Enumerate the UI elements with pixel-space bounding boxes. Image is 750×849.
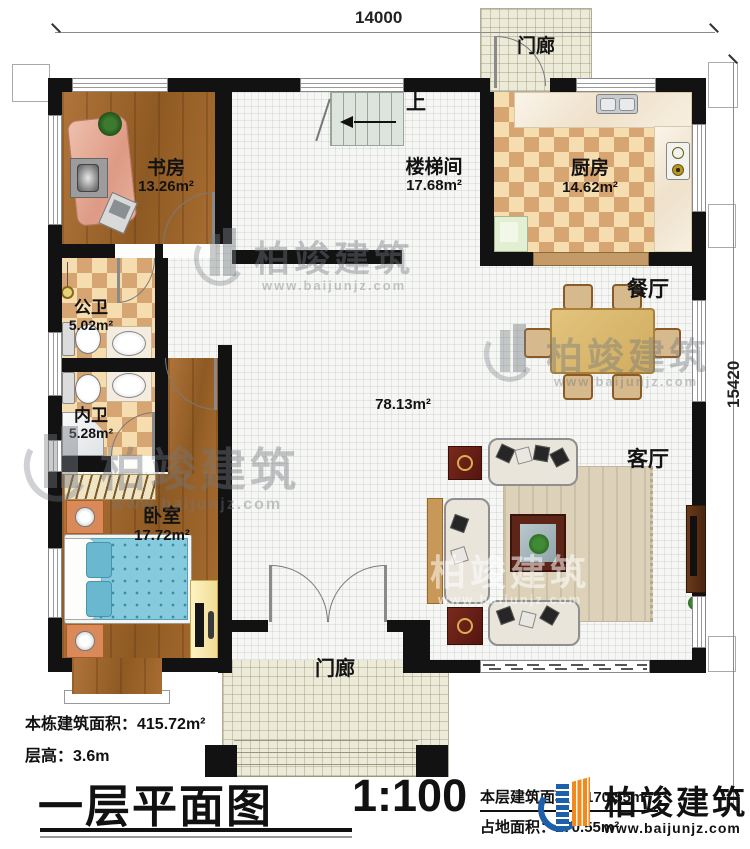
sliding-door — [480, 660, 650, 673]
brand-name: 柏竣建筑 — [604, 776, 748, 824]
window — [576, 78, 656, 92]
window — [48, 115, 62, 225]
private-bath-toilet — [75, 374, 101, 404]
room-area-kitchen: 14.62m² — [540, 179, 640, 196]
private-bath-toilet-tank — [62, 372, 75, 404]
room-label-dining: 餐厅 — [608, 278, 688, 302]
room-label-stairwell: 楼梯间 — [382, 157, 486, 179]
window — [692, 124, 706, 212]
exterior-pier — [12, 64, 50, 102]
floor-height: 层高：3.6m — [25, 742, 109, 766]
wall-segment — [480, 252, 533, 266]
wall-segment — [232, 250, 402, 264]
window — [72, 78, 168, 92]
exterior-pier — [708, 204, 736, 248]
wall-segment — [692, 212, 706, 300]
wall-segment — [692, 78, 706, 124]
door-leaf — [152, 412, 155, 456]
window — [692, 596, 706, 648]
floor-plan: 14000 15420 — [0, 0, 750, 849]
room-label-private-bath: 内卫 — [46, 406, 136, 426]
dimension-line-top — [55, 32, 715, 33]
dimension-line-right — [733, 62, 734, 810]
window — [48, 332, 62, 396]
plan-title: 一层平面图 — [38, 770, 273, 835]
door-leaf — [212, 192, 215, 244]
room-label-bedroom: 卧室 — [112, 506, 212, 528]
stair-direction-arrow — [354, 121, 396, 123]
side-table — [448, 446, 482, 480]
bedroom-tv-cabinet — [190, 580, 218, 668]
wall-segment — [168, 78, 300, 92]
room-label-public-bath: 公卫 — [46, 298, 136, 318]
total-building-area: 本栋建筑面积：415.72m² — [25, 710, 206, 734]
room-area-bedroom: 17.72m² — [112, 527, 212, 544]
dining-chair — [563, 284, 593, 310]
room-area-public-bath: 5.02m² — [46, 317, 136, 333]
dining-chair — [653, 328, 681, 358]
room-label-kitchen: 厨房 — [540, 158, 640, 180]
window — [48, 548, 62, 618]
dining-table — [550, 308, 655, 374]
kitchen-sink — [596, 94, 638, 114]
door-opening — [111, 456, 155, 472]
dimension-height: 15420 — [724, 344, 744, 408]
bed-pillow — [86, 581, 112, 617]
wall-segment — [232, 620, 268, 632]
window — [692, 300, 706, 402]
title-underline-thin — [40, 836, 352, 838]
private-bath-vanity — [106, 368, 152, 402]
bedroom-bay-floor — [72, 658, 162, 694]
study-chair — [70, 158, 108, 198]
exterior-pier — [708, 636, 736, 672]
study-plant — [98, 112, 122, 136]
kitchen-fridge — [494, 216, 528, 252]
room-area-private-bath: 5.28m² — [46, 425, 136, 441]
wall-segment — [48, 78, 62, 115]
room-label-porch-bottom: 门廊 — [260, 658, 410, 681]
dimension-width: 14000 — [355, 8, 402, 28]
sofa-pillow — [533, 445, 550, 462]
dining-chair — [563, 374, 593, 400]
plan-scale: 1:100 — [352, 770, 467, 822]
hall-area-label: 78.13m² — [348, 396, 458, 413]
room-label-porch-top: 门廊 — [480, 36, 592, 58]
brand-url: www.baijunjz.com — [604, 820, 741, 836]
room-area-stairwell: 17.68m² — [382, 177, 486, 194]
living-console — [427, 498, 443, 604]
dining-chair — [612, 374, 642, 400]
wall-segment — [387, 620, 403, 632]
wall-segment — [48, 472, 62, 548]
wall-segment — [48, 358, 155, 372]
stairs-up-label: 上 — [402, 92, 430, 115]
wall-segment — [218, 345, 232, 673]
coffee-table — [510, 514, 566, 572]
room-area-study: 13.26m² — [116, 178, 216, 195]
window — [48, 440, 62, 472]
window — [300, 78, 404, 92]
room-label-study: 书房 — [116, 158, 216, 180]
door-opening — [115, 244, 155, 258]
wall-segment — [550, 78, 576, 92]
nightstand — [66, 500, 104, 534]
stair-arrow-head — [340, 116, 353, 128]
dining-chair — [524, 328, 552, 358]
bed-pillow — [86, 542, 112, 578]
living-tv-cabinet — [686, 505, 706, 593]
title-underline — [40, 828, 352, 832]
wall-segment — [215, 92, 232, 244]
door-leaf — [117, 258, 120, 303]
door-opening — [163, 244, 215, 258]
kitchen-entry-threshold — [533, 252, 649, 266]
kitchen-stove — [666, 142, 690, 180]
side-table — [447, 607, 483, 645]
bath-lamp-cord — [67, 262, 68, 288]
door-leaf — [214, 358, 217, 410]
room-label-living: 客厅 — [608, 448, 688, 472]
nightstand — [66, 624, 104, 658]
wall-segment — [649, 252, 692, 266]
wall-segment — [404, 78, 490, 92]
wardrobe-hangers — [64, 474, 156, 500]
wall-segment — [48, 658, 72, 672]
